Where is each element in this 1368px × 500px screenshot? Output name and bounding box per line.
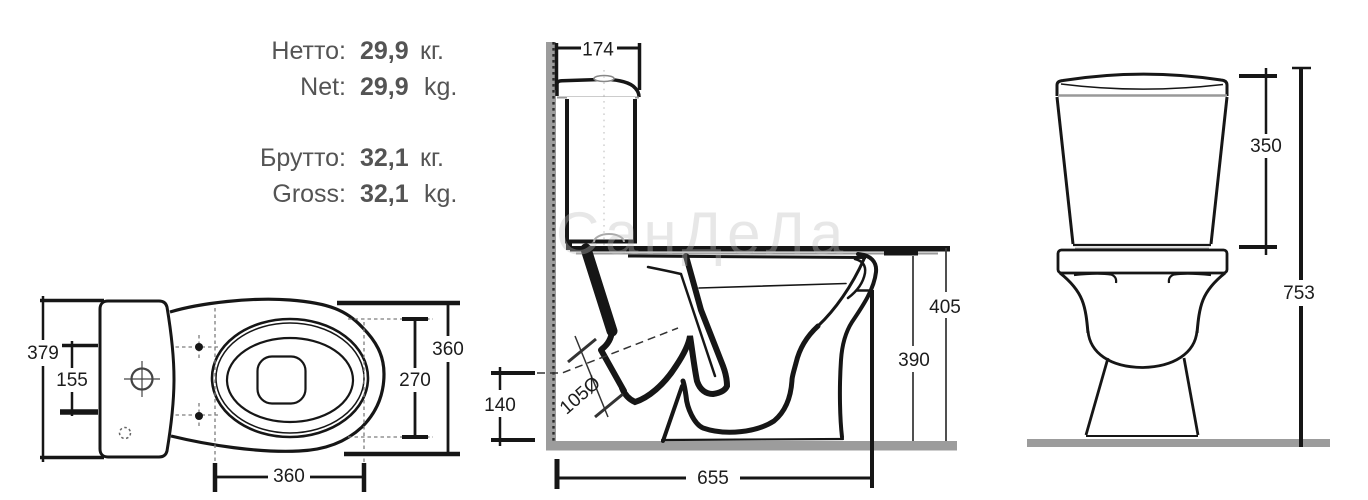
svg-text:655: 655	[697, 468, 729, 489]
svg-text:753: 753	[1283, 283, 1315, 304]
svg-text:174: 174	[582, 40, 614, 61]
svg-text:155: 155	[56, 370, 88, 391]
svg-text:Нетто:: Нетто:	[271, 37, 346, 65]
svg-text:360: 360	[432, 339, 464, 360]
svg-text:29,9: 29,9	[360, 37, 409, 65]
svg-text:379: 379	[27, 343, 59, 364]
svg-text:СанДеЛа: СанДеЛа	[556, 200, 848, 267]
svg-text:kg.: kg.	[424, 180, 457, 208]
svg-text:390: 390	[898, 350, 930, 371]
svg-text:32,1: 32,1	[360, 144, 409, 172]
svg-text:Брутто:: Брутто:	[260, 144, 346, 172]
svg-text:32,1: 32,1	[360, 180, 409, 208]
svg-text:кг.: кг.	[420, 144, 444, 172]
svg-text:350: 350	[1250, 136, 1282, 157]
svg-text:405: 405	[929, 297, 961, 318]
svg-text:29,9: 29,9	[360, 73, 409, 101]
svg-text:140: 140	[484, 395, 516, 416]
svg-text:kg.: kg.	[424, 73, 457, 101]
svg-text:270: 270	[399, 370, 431, 391]
svg-text:кг.: кг.	[420, 37, 444, 65]
svg-text:Gross:: Gross:	[272, 180, 346, 208]
svg-text:Net:: Net:	[300, 73, 346, 101]
svg-text:360: 360	[273, 466, 305, 487]
